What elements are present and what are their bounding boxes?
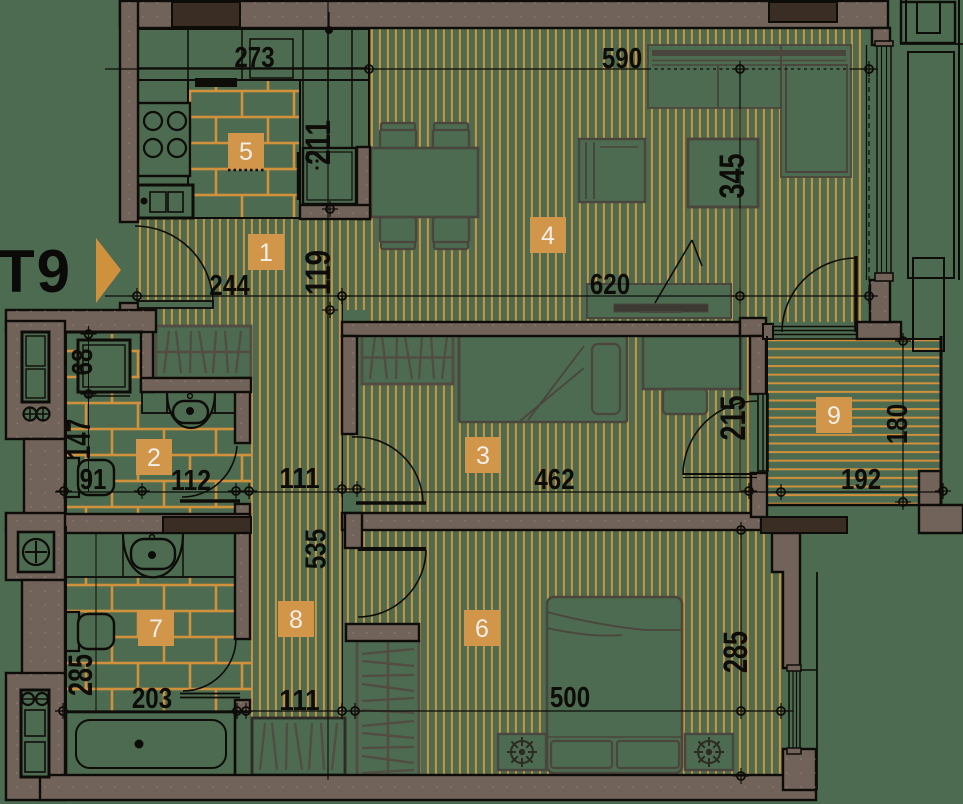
svg-text:7: 7	[149, 615, 163, 643]
svg-text:3: 3	[476, 442, 490, 470]
svg-text:5: 5	[239, 138, 253, 166]
svg-text:9: 9	[827, 402, 841, 430]
svg-text:2: 2	[147, 444, 161, 472]
svg-text:180: 180	[882, 404, 914, 444]
svg-text:500: 500	[550, 682, 590, 714]
svg-text:119: 119	[299, 250, 338, 295]
svg-text:68: 68	[67, 349, 99, 376]
svg-text:285: 285	[717, 631, 755, 673]
svg-text:620: 620	[590, 269, 630, 301]
svg-text:192: 192	[841, 464, 881, 496]
svg-text:215: 215	[714, 396, 753, 441]
svg-text:T9: T9	[0, 238, 72, 305]
svg-text:91: 91	[80, 464, 107, 496]
svg-text:112: 112	[171, 465, 211, 497]
svg-text:535: 535	[301, 529, 333, 569]
svg-text:6: 6	[475, 615, 489, 643]
svg-text:8: 8	[289, 606, 303, 634]
svg-text:345: 345	[713, 154, 752, 199]
svg-text:273: 273	[234, 42, 274, 74]
svg-text:1: 1	[259, 239, 273, 267]
svg-text:203: 203	[132, 683, 172, 715]
svg-text:111: 111	[279, 463, 319, 495]
svg-text:244: 244	[209, 270, 249, 302]
svg-text:147: 147	[60, 419, 97, 459]
svg-text:211: 211	[299, 120, 338, 165]
svg-text:590: 590	[602, 43, 642, 75]
svg-text:285: 285	[62, 654, 100, 696]
svg-text:462: 462	[534, 464, 574, 496]
svg-text:4: 4	[541, 222, 555, 250]
svg-text:111: 111	[279, 685, 319, 717]
